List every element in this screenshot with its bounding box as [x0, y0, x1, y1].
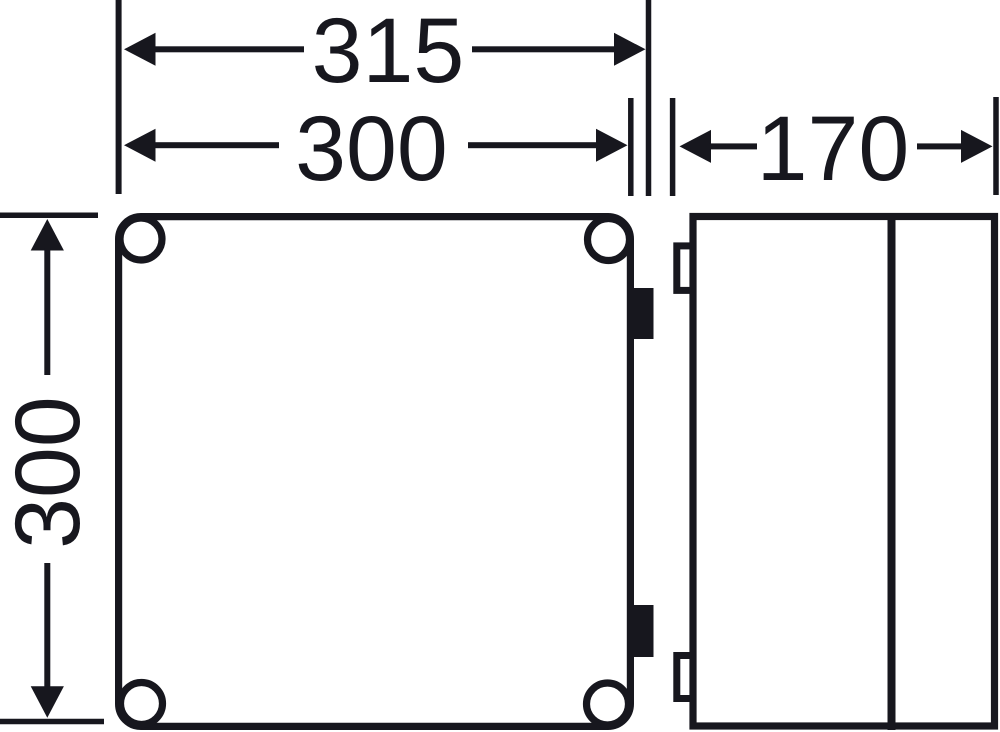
svg-text:300: 300	[0, 396, 99, 549]
svg-text:170: 170	[757, 98, 910, 200]
svg-text:300: 300	[295, 98, 448, 200]
svg-text:315: 315	[312, 0, 465, 102]
